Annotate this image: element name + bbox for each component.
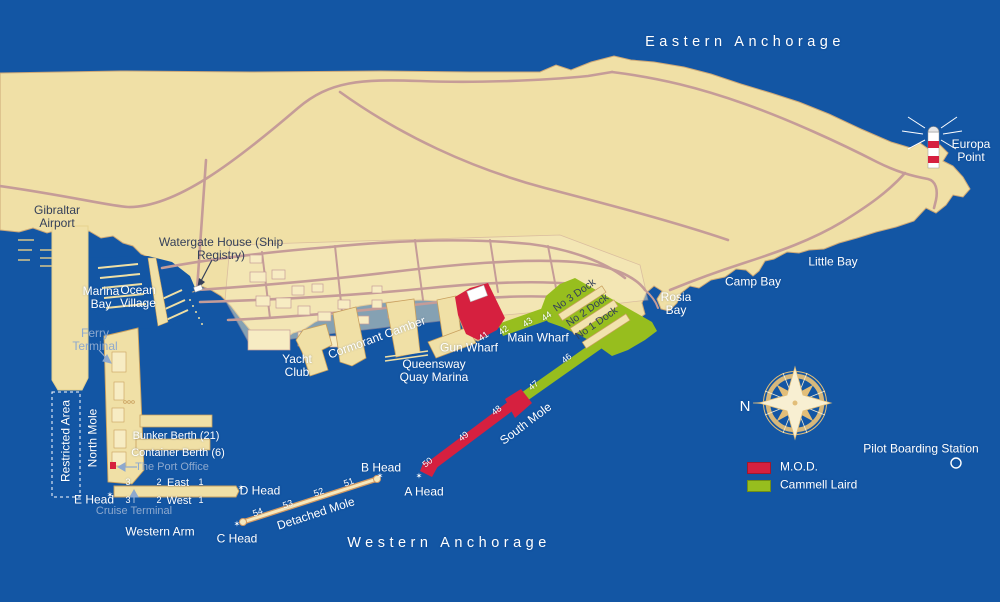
- label-eastern-anchorage: Eastern Anchorage: [645, 35, 845, 51]
- label-ferry-terminal: Ferry Terminal: [64, 327, 126, 353]
- label-d-head: D Head: [240, 484, 281, 497]
- label-gibraltar-airport: Gibraltar Airport: [25, 204, 89, 230]
- label-east: East: [167, 477, 189, 489]
- label-queensway-quay-marina: Queensway Quay Marina: [388, 358, 480, 384]
- label-container-berth: Container Berth (6): [131, 447, 225, 459]
- beacon-star-a-icon: ✶: [416, 473, 423, 482]
- label-a-head: A Head: [404, 485, 443, 498]
- berth-east-3: 3: [125, 478, 130, 488]
- beacon-star-e-icon: ✶: [107, 492, 114, 501]
- berth-west-3: 3: [125, 496, 130, 506]
- beacon-star-d-icon: ✶: [238, 485, 245, 494]
- berth-east-2: 2: [156, 478, 161, 488]
- port-office-marker: [110, 462, 116, 469]
- label-rosia-bay: Rosia Bay: [655, 291, 697, 317]
- label-europa-point: Europa Point: [945, 138, 997, 164]
- legend-cammell-label: Cammell Laird: [780, 478, 857, 491]
- beacon-star-c-icon: ✶: [234, 521, 241, 530]
- label-restricted-area: Restricted Area: [59, 400, 72, 482]
- label-cruise-terminal: Cruise Terminal: [96, 505, 172, 517]
- label-ocean-village: Ocean Village: [113, 284, 163, 310]
- berth-west-2: 2: [156, 496, 161, 506]
- label-gun-wharf: Gun Wharf: [440, 341, 498, 354]
- label-little-bay: Little Bay: [808, 255, 857, 268]
- label-west: West: [167, 495, 192, 507]
- label-pilot-boarding-station: Pilot Boarding Station: [863, 442, 978, 455]
- berth-west-1: 1: [198, 496, 203, 506]
- label-watergate-house: Watergate House (Ship Registry): [155, 236, 287, 262]
- label-western-arm: Western Arm: [125, 525, 194, 538]
- gibraltar-port-map: Eastern Anchorage Western Anchorage Euro…: [0, 0, 1000, 602]
- label-bunker-berth: Bunker Berth (21): [133, 430, 220, 442]
- label-c-head: C Head: [217, 532, 258, 545]
- label-north-mole: North Mole: [86, 409, 99, 468]
- beacon-star-b-icon: ✶: [377, 473, 384, 482]
- legend-mod-swatch: [747, 462, 771, 474]
- legend-cammell-swatch: [747, 480, 771, 492]
- label-port-office: The Port Office: [135, 461, 209, 473]
- label-yacht-club: Yacht Club: [275, 353, 319, 379]
- label-camp-bay: Camp Bay: [725, 275, 781, 288]
- label-western-anchorage: Western Anchorage: [347, 536, 551, 552]
- legend-mod-label: M.O.D.: [780, 460, 818, 473]
- label-main-wharf: Main Wharf: [507, 331, 568, 344]
- berth-east-1: 1: [198, 478, 203, 488]
- label-compass-north: N: [740, 399, 751, 416]
